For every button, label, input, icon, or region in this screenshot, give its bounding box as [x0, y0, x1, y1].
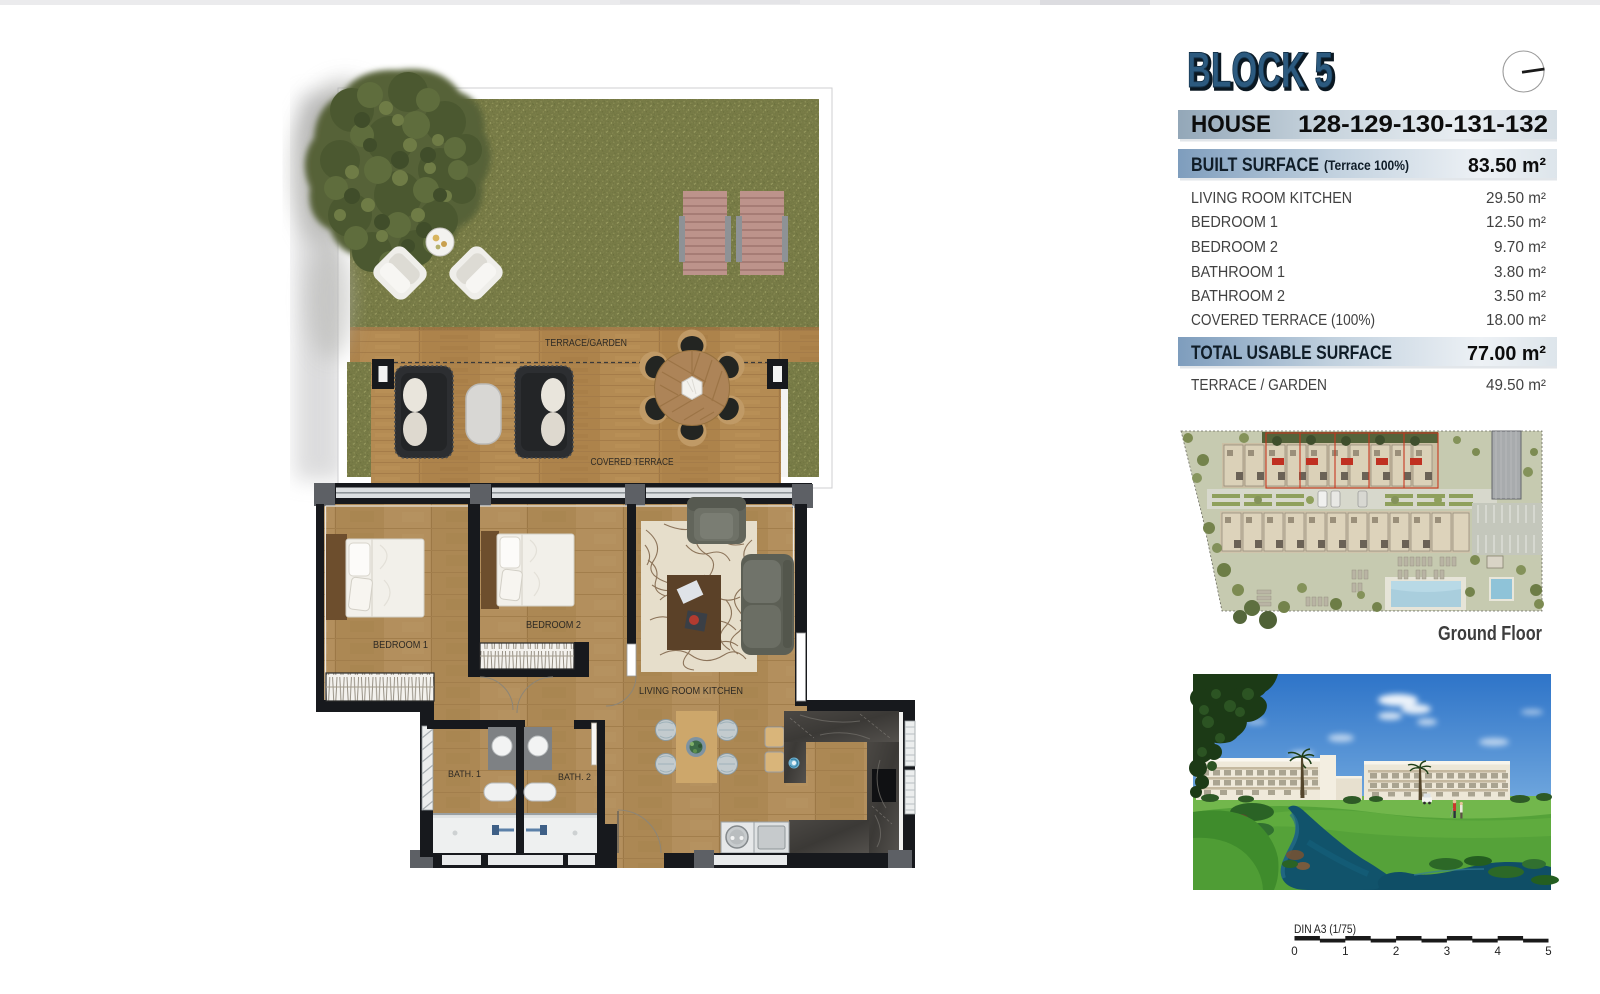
svg-text:BATH. 1: BATH. 1: [448, 769, 481, 779]
svg-text:TERRACE/GARDEN: TERRACE/GARDEN: [545, 337, 627, 349]
svg-text:9.70 m²: 9.70 m²: [1494, 239, 1546, 256]
svg-text:LIVING ROOM KITCHEN: LIVING ROOM KITCHEN: [639, 686, 743, 697]
svg-text:3: 3: [1444, 946, 1450, 958]
svg-text:49.50 m²: 49.50 m²: [1486, 377, 1546, 394]
svg-text:HOUSE: HOUSE: [1191, 111, 1271, 138]
svg-text:12.50 m²: 12.50 m²: [1486, 214, 1546, 231]
svg-text:BATHROOM 2: BATHROOM 2: [1191, 288, 1285, 305]
svg-text:4: 4: [1494, 946, 1501, 958]
svg-text:BEDROOM 2: BEDROOM 2: [1191, 239, 1278, 256]
svg-text:TOTAL USABLE SURFACE: TOTAL USABLE SURFACE: [1191, 342, 1392, 364]
svg-text:COVERED TERRACE (100%): COVERED TERRACE (100%): [1191, 312, 1375, 329]
svg-text:TERRACE / GARDEN: TERRACE / GARDEN: [1191, 377, 1327, 394]
svg-text:Ground Floor: Ground Floor: [1438, 623, 1542, 645]
svg-text:18.00 m²: 18.00 m²: [1486, 312, 1546, 329]
svg-text:BEDROOM 1: BEDROOM 1: [1191, 214, 1278, 231]
svg-text:83.50 m²: 83.50 m²: [1468, 154, 1546, 177]
svg-text:128-129-130-131-132: 128-129-130-131-132: [1298, 111, 1548, 138]
svg-text:BATHROOM 1: BATHROOM 1: [1191, 264, 1285, 281]
svg-text:BATH. 2: BATH. 2: [558, 772, 591, 782]
svg-text:5: 5: [1545, 946, 1551, 958]
svg-text:COVERED TERRACE: COVERED TERRACE: [591, 456, 674, 468]
svg-text:(Terrace 100%): (Terrace 100%): [1324, 158, 1409, 173]
svg-text:BUILT SURFACE: BUILT SURFACE: [1191, 154, 1319, 176]
svg-text:3.80 m²: 3.80 m²: [1494, 264, 1546, 281]
svg-text:3.50 m²: 3.50 m²: [1494, 288, 1546, 305]
svg-text:DIN A3 (1/75): DIN A3 (1/75): [1294, 924, 1356, 936]
svg-text:BEDROOM 1: BEDROOM 1: [373, 640, 428, 651]
svg-text:BEDROOM 2: BEDROOM 2: [526, 620, 581, 631]
svg-text:29.50 m²: 29.50 m²: [1486, 190, 1546, 207]
svg-text:BLOCK 5: BLOCK 5: [1187, 42, 1333, 98]
svg-text:1: 1: [1342, 946, 1348, 958]
svg-text:2: 2: [1393, 946, 1399, 958]
svg-text:0: 0: [1291, 946, 1297, 958]
svg-text:77.00 m²: 77.00 m²: [1467, 342, 1546, 365]
svg-text:LIVING ROOM KITCHEN: LIVING ROOM KITCHEN: [1191, 190, 1352, 207]
